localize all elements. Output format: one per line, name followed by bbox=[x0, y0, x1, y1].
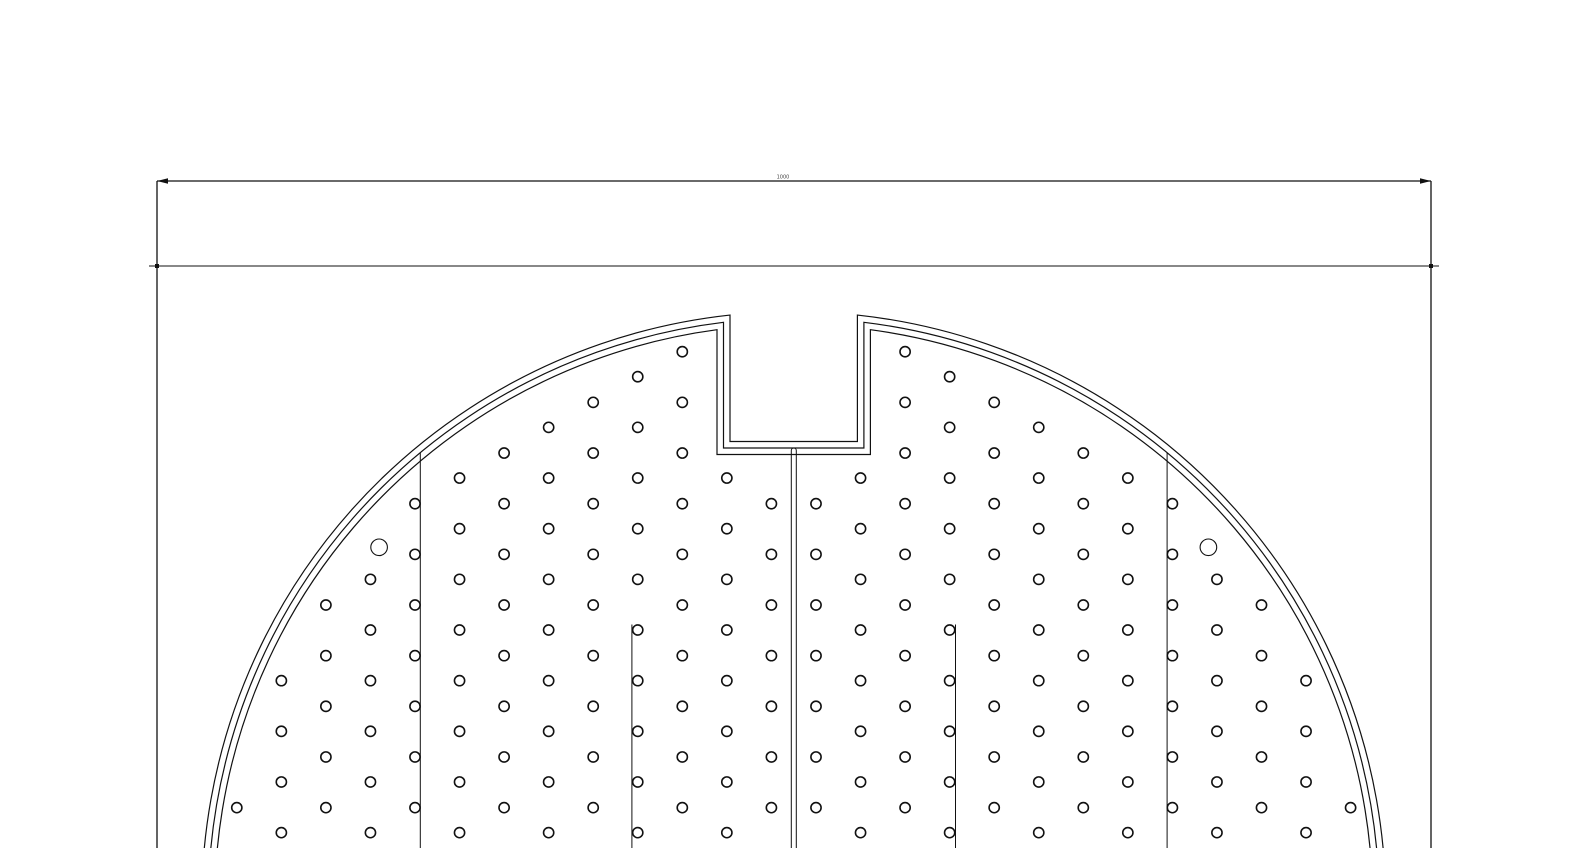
tube-hole bbox=[544, 676, 554, 686]
frame-and-dimension bbox=[149, 178, 1439, 848]
tube-hole bbox=[321, 803, 331, 813]
tube-hole bbox=[454, 574, 464, 584]
tube-hole bbox=[677, 803, 687, 813]
tube-hole bbox=[945, 372, 955, 382]
tube-hole bbox=[499, 499, 509, 509]
tube-hole bbox=[989, 752, 999, 762]
tube-hole bbox=[811, 803, 821, 813]
tube-hole bbox=[1167, 499, 1177, 509]
tube-hole bbox=[633, 372, 643, 382]
tube-hole bbox=[989, 803, 999, 813]
tube-hole bbox=[900, 448, 910, 458]
tube-hole bbox=[1346, 803, 1356, 813]
tube-hole bbox=[766, 752, 776, 762]
tube-hole bbox=[722, 676, 732, 686]
tube-hole bbox=[766, 701, 776, 711]
dimension-label: 1000 bbox=[777, 175, 790, 181]
tube-hole bbox=[766, 651, 776, 661]
tube-hole bbox=[1078, 803, 1088, 813]
tube-hole bbox=[900, 499, 910, 509]
tube-hole bbox=[1212, 828, 1222, 838]
tube-hole bbox=[855, 726, 865, 736]
corner-mark-left bbox=[155, 264, 159, 268]
tube-hole bbox=[1034, 777, 1044, 787]
tube-hole bbox=[1123, 777, 1133, 787]
tube-hole bbox=[1256, 752, 1266, 762]
tube-hole bbox=[633, 422, 643, 432]
tube-hole bbox=[321, 701, 331, 711]
tube-hole bbox=[900, 600, 910, 610]
tube-hole bbox=[855, 625, 865, 635]
partition-lanes bbox=[420, 448, 1167, 848]
tube-hole bbox=[811, 600, 821, 610]
tube-hole bbox=[633, 574, 643, 584]
tube-hole bbox=[1301, 676, 1311, 686]
tube-hole bbox=[1123, 726, 1133, 736]
tube-hole bbox=[811, 499, 821, 509]
tube-hole bbox=[454, 828, 464, 838]
tube-hole bbox=[766, 499, 776, 509]
tube-hole bbox=[1301, 777, 1311, 787]
drawing-canvas: 1000 bbox=[0, 0, 1595, 848]
tube-hole bbox=[1301, 828, 1311, 838]
tube-hole bbox=[1034, 473, 1044, 483]
tube-hole bbox=[722, 828, 732, 838]
tube-hole bbox=[677, 701, 687, 711]
tube-hole bbox=[900, 651, 910, 661]
tube-hole bbox=[989, 651, 999, 661]
tube-hole bbox=[321, 752, 331, 762]
tube-hole bbox=[588, 499, 598, 509]
tube-hole bbox=[276, 726, 286, 736]
tube-hole bbox=[544, 777, 554, 787]
tube-hole bbox=[410, 701, 420, 711]
tube-hole bbox=[633, 777, 643, 787]
tube-hole bbox=[811, 549, 821, 559]
tube-hole bbox=[588, 448, 598, 458]
tube-hole bbox=[1078, 752, 1088, 762]
tube-hole bbox=[365, 574, 375, 584]
tube-hole bbox=[989, 448, 999, 458]
tube-hole bbox=[499, 701, 509, 711]
tube-hole bbox=[454, 524, 464, 534]
tube-hole-pattern bbox=[232, 347, 1356, 838]
tube-hole bbox=[633, 676, 643, 686]
tube-hole bbox=[900, 752, 910, 762]
tube-hole bbox=[633, 828, 643, 838]
tube-hole bbox=[811, 701, 821, 711]
tube-hole bbox=[811, 651, 821, 661]
tube-hole bbox=[588, 549, 598, 559]
tube-hole bbox=[722, 524, 732, 534]
tube-hole bbox=[588, 600, 598, 610]
tube-hole bbox=[766, 549, 776, 559]
tube-hole bbox=[766, 600, 776, 610]
tube-hole bbox=[677, 448, 687, 458]
tube-hole bbox=[677, 752, 687, 762]
tube-hole bbox=[989, 701, 999, 711]
tube-hole bbox=[1123, 828, 1133, 838]
tube-hole bbox=[499, 549, 509, 559]
tube-hole bbox=[1256, 803, 1266, 813]
tube-hole bbox=[900, 803, 910, 813]
tube-hole bbox=[499, 803, 509, 813]
tube-hole bbox=[855, 676, 865, 686]
technical-drawing: 1000 bbox=[0, 0, 1595, 848]
tube-hole bbox=[588, 701, 598, 711]
tube-hole bbox=[1034, 676, 1044, 686]
tube-hole bbox=[1078, 448, 1088, 458]
corner-mark-right bbox=[1429, 264, 1433, 268]
tube-hole bbox=[544, 574, 554, 584]
tube-hole bbox=[1256, 701, 1266, 711]
tube-hole bbox=[1212, 625, 1222, 635]
tube-hole bbox=[677, 499, 687, 509]
dimension-arrow-left bbox=[157, 178, 168, 184]
tube-hole bbox=[855, 574, 865, 584]
tube-hole bbox=[945, 473, 955, 483]
tube-hole bbox=[365, 676, 375, 686]
tube-hole bbox=[855, 473, 865, 483]
tube-hole bbox=[722, 473, 732, 483]
tube-hole bbox=[855, 777, 865, 787]
tube-hole bbox=[945, 676, 955, 686]
tube-hole bbox=[722, 574, 732, 584]
dimension-arrow-right bbox=[1420, 178, 1431, 184]
tube-hole bbox=[945, 625, 955, 635]
tube-hole bbox=[1034, 422, 1044, 432]
tube-hole bbox=[454, 777, 464, 787]
tube-hole bbox=[1034, 574, 1044, 584]
tube-hole bbox=[454, 473, 464, 483]
tube-hole bbox=[1167, 803, 1177, 813]
tube-hole bbox=[1078, 549, 1088, 559]
rim-contour-1 bbox=[202, 315, 1386, 848]
tube-hole bbox=[1078, 651, 1088, 661]
tube-hole bbox=[544, 422, 554, 432]
tube-hole bbox=[544, 625, 554, 635]
tube-hole bbox=[588, 803, 598, 813]
tube-hole bbox=[677, 651, 687, 661]
tie-rod-hole-2 bbox=[1200, 539, 1217, 556]
tube-hole bbox=[677, 347, 687, 357]
tube-hole bbox=[454, 726, 464, 736]
tube-hole bbox=[677, 397, 687, 407]
rim-contour-2 bbox=[208, 322, 1379, 848]
tube-hole bbox=[633, 473, 643, 483]
tube-hole bbox=[1034, 726, 1044, 736]
tube-hole bbox=[1212, 777, 1222, 787]
tube-hole bbox=[989, 549, 999, 559]
tube-hole bbox=[1301, 726, 1311, 736]
tube-hole bbox=[410, 803, 420, 813]
tube-hole bbox=[544, 726, 554, 736]
tube-hole bbox=[365, 828, 375, 838]
tube-hole bbox=[1167, 549, 1177, 559]
tube-hole bbox=[588, 752, 598, 762]
tube-hole bbox=[900, 701, 910, 711]
tube-hole bbox=[1167, 752, 1177, 762]
tube-hole bbox=[1167, 600, 1177, 610]
tube-hole bbox=[1123, 473, 1133, 483]
tube-hole bbox=[1256, 600, 1266, 610]
tube-hole bbox=[454, 676, 464, 686]
tube-hole bbox=[276, 676, 286, 686]
tube-hole bbox=[1167, 651, 1177, 661]
tube-hole bbox=[321, 651, 331, 661]
tube-hole bbox=[365, 625, 375, 635]
tube-hole bbox=[499, 651, 509, 661]
tube-hole bbox=[677, 549, 687, 559]
tube-hole bbox=[1078, 499, 1088, 509]
tube-hole bbox=[499, 600, 509, 610]
tube-hole bbox=[1256, 651, 1266, 661]
tube-hole bbox=[900, 397, 910, 407]
tube-hole bbox=[900, 347, 910, 357]
tube-hole bbox=[454, 625, 464, 635]
tube-hole bbox=[633, 625, 643, 635]
tube-hole bbox=[989, 600, 999, 610]
tube-hole bbox=[900, 549, 910, 559]
tube-hole bbox=[544, 828, 554, 838]
tube-hole bbox=[855, 524, 865, 534]
tube-hole bbox=[544, 524, 554, 534]
tube-hole bbox=[1167, 701, 1177, 711]
tube-hole bbox=[1212, 676, 1222, 686]
tube-hole bbox=[321, 600, 331, 610]
tube-hole bbox=[499, 448, 509, 458]
tube-hole bbox=[989, 397, 999, 407]
tube-hole bbox=[410, 549, 420, 559]
tube-hole bbox=[1034, 625, 1044, 635]
tube-hole bbox=[410, 651, 420, 661]
tie-rod-holes bbox=[371, 539, 1217, 556]
tube-hole bbox=[722, 777, 732, 787]
tube-hole bbox=[633, 524, 643, 534]
tube-hole bbox=[276, 828, 286, 838]
tube-hole bbox=[232, 803, 242, 813]
tube-hole bbox=[1212, 726, 1222, 736]
tube-hole bbox=[410, 600, 420, 610]
tube-hole bbox=[945, 726, 955, 736]
tube-hole bbox=[811, 752, 821, 762]
tube-hole bbox=[945, 828, 955, 838]
tube-hole bbox=[945, 422, 955, 432]
tube-hole bbox=[1078, 701, 1088, 711]
tube-hole bbox=[365, 726, 375, 736]
plate-outline bbox=[202, 315, 1386, 848]
tube-hole bbox=[410, 499, 420, 509]
tube-hole bbox=[945, 574, 955, 584]
tube-hole bbox=[722, 625, 732, 635]
tube-hole bbox=[1034, 828, 1044, 838]
tube-hole bbox=[1078, 600, 1088, 610]
tube-hole bbox=[945, 777, 955, 787]
tube-hole bbox=[1123, 574, 1133, 584]
tube-hole bbox=[410, 752, 420, 762]
tube-hole bbox=[722, 726, 732, 736]
tube-hole bbox=[588, 651, 598, 661]
tube-hole bbox=[1212, 574, 1222, 584]
tube-hole bbox=[1123, 676, 1133, 686]
tube-hole bbox=[365, 777, 375, 787]
tube-hole bbox=[766, 803, 776, 813]
tube-hole bbox=[1034, 524, 1044, 534]
tube-hole bbox=[945, 524, 955, 534]
tube-hole bbox=[677, 600, 687, 610]
tube-hole bbox=[499, 752, 509, 762]
rim-contour-3 bbox=[215, 330, 1373, 848]
tube-hole bbox=[989, 499, 999, 509]
tube-hole bbox=[1123, 625, 1133, 635]
tube-hole bbox=[544, 473, 554, 483]
center-partition-slot bbox=[791, 448, 796, 848]
tube-hole bbox=[1123, 524, 1133, 534]
tube-hole bbox=[588, 397, 598, 407]
tube-hole bbox=[633, 726, 643, 736]
tie-rod-hole-1 bbox=[371, 539, 388, 556]
tube-hole bbox=[276, 777, 286, 787]
tube-hole bbox=[855, 828, 865, 838]
